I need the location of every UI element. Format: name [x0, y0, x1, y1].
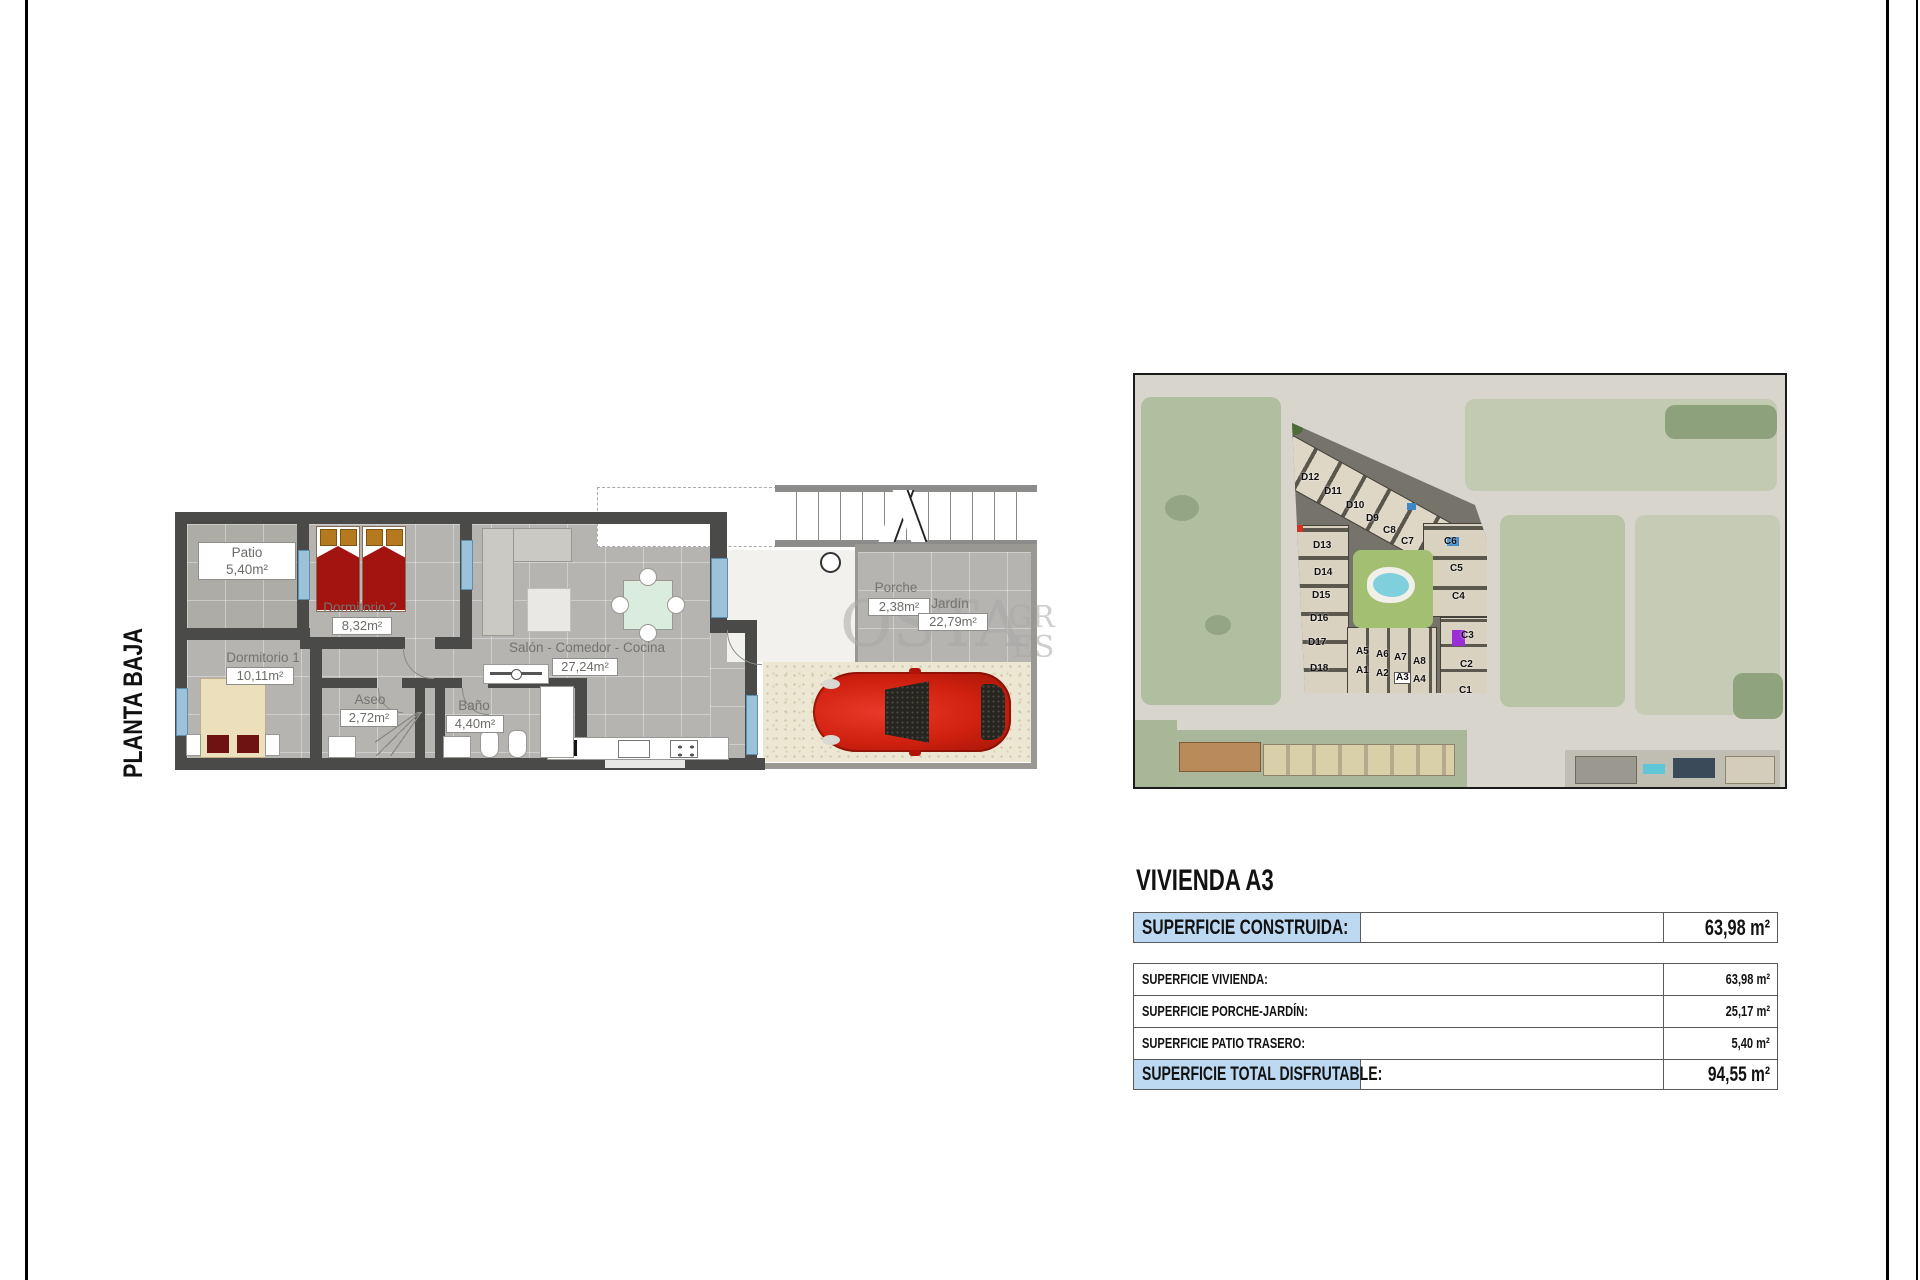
- bed-single: [200, 678, 266, 758]
- nightstand: [265, 734, 280, 756]
- window: [711, 558, 728, 618]
- sofa: [482, 528, 514, 636]
- map-unit-label-D17: D17: [1308, 638, 1326, 648]
- shower-tray: [540, 686, 574, 758]
- room-label-porche: Porche: [848, 580, 944, 595]
- map-unit-label-A7: A7: [1394, 653, 1407, 663]
- kitchen-window: [605, 760, 685, 768]
- row-value: 25,17 m²: [1726, 1003, 1770, 1020]
- map-unit-label-D12: D12: [1301, 473, 1319, 483]
- page-edge-rule: [1916, 0, 1918, 1280]
- room-label-aseo: Aseo: [342, 692, 398, 707]
- room-area-jardin: 22,79m²: [918, 613, 988, 631]
- table-total-row: SUPERFICIE TOTAL DISFRUTABLE: 94,55 m²: [1134, 1060, 1777, 1089]
- room-label-bano: Baño: [446, 698, 502, 713]
- total-value: 94,55 m²: [1708, 1063, 1770, 1087]
- pillow: [366, 529, 383, 546]
- row-value-cell: 25,17 m²: [1663, 996, 1777, 1027]
- summary-header-value-cell: 63,98 m²: [1663, 913, 1777, 942]
- map-unit-label-C4: C4: [1452, 592, 1465, 602]
- map-unit-label-D15: D15: [1312, 591, 1330, 601]
- summary-header-value: 63,98 m²: [1705, 915, 1770, 941]
- row-value-cell: 63,98 m²: [1663, 964, 1777, 995]
- pillow: [207, 735, 229, 753]
- chair: [611, 596, 629, 614]
- map-unit-label-C5: C5: [1450, 564, 1463, 574]
- room-name: Patio: [205, 544, 289, 561]
- page-left-rule: [25, 0, 28, 1280]
- pillow: [320, 529, 337, 546]
- window: [176, 688, 188, 736]
- floor-label: PLANTA BAJA: [118, 628, 149, 778]
- total-label: SUPERFICIE TOTAL DISFRUTABLE:: [1142, 1064, 1382, 1086]
- map-unit-label-C6: C6: [1444, 537, 1457, 547]
- map-unit-label-C8: C8: [1383, 526, 1396, 536]
- wall: [322, 678, 377, 688]
- kitchen-counter: [547, 737, 729, 760]
- room-label-dorm2: Dormitorio 2: [310, 600, 410, 615]
- toilet: [480, 730, 499, 758]
- map-unit-label-D14: D14: [1314, 568, 1332, 578]
- map-unit-label-A3: A3: [1394, 672, 1411, 684]
- summary-table: SUPERFICIE VIVIENDA: 63,98 m² SUPERFICIE…: [1133, 963, 1778, 1090]
- total-value-cell: 94,55 m²: [1663, 1060, 1777, 1089]
- window: [461, 540, 473, 590]
- room-area-dorm1: 10,11m²: [226, 667, 294, 685]
- summary-header-label: SUPERFICIE CONSTRUIDA:: [1142, 916, 1348, 940]
- porch-column: [820, 552, 841, 573]
- bidet: [508, 730, 527, 758]
- stove: [670, 740, 698, 758]
- map-unit-label-D13: D13: [1313, 541, 1331, 551]
- sink: [618, 740, 650, 758]
- pillow: [237, 735, 259, 753]
- curb: [765, 763, 1037, 769]
- washbasin: [443, 736, 471, 758]
- row-label: SUPERFICIE PORCHE-JARDÍN:: [1142, 1003, 1308, 1020]
- wall: [175, 628, 310, 640]
- pillow: [340, 529, 357, 546]
- room-label-patio: Patio 5,40m²: [198, 542, 296, 580]
- page-title: VIVIENDA A3: [1136, 864, 1274, 898]
- map-unit-label-C1: C1: [1459, 686, 1472, 696]
- washbasin: [328, 736, 356, 758]
- wall: [175, 512, 727, 524]
- map-unit-label-A5: A5: [1356, 647, 1369, 657]
- summary-header-row: SUPERFICIE CONSTRUIDA: 63,98 m²: [1133, 912, 1778, 943]
- room-area-bano: 4,40m²: [446, 715, 504, 733]
- chair: [639, 568, 657, 586]
- map-unit-label-A1: A1: [1356, 666, 1369, 676]
- car-headlight: [822, 735, 840, 745]
- nightstand: [186, 734, 201, 756]
- summary-header-label-cell: SUPERFICIE CONSTRUIDA:: [1134, 913, 1361, 942]
- watermark-text: ES: [1012, 630, 1054, 665]
- chair: [667, 596, 685, 614]
- room-area: 5,40m²: [205, 561, 289, 578]
- car: [813, 672, 1011, 752]
- garden-wall: [855, 544, 1037, 552]
- floor-plan: OSTA GR ES Patio 5,40m² Dormitorio 2 8,3…: [150, 480, 1060, 790]
- car-windshield: [885, 680, 929, 744]
- row-value: 5,40 m²: [1732, 1035, 1770, 1052]
- room-label-jardin: Jardín: [902, 596, 998, 611]
- site-map-aerial: D12D11D10D9C8C7C6C5C4D13D14D15D16D17D18A…: [1133, 373, 1787, 789]
- table-row: SUPERFICIE PORCHE-JARDÍN: 25,17 m²: [1134, 996, 1777, 1028]
- row-label: SUPERFICIE PATIO TRASERO:: [1142, 1035, 1305, 1052]
- map-unit-label-D9: D9: [1366, 514, 1379, 524]
- map-unit-labels: D12D11D10D9C8C7C6C5C4D13D14D15D16D17D18A…: [1135, 375, 1785, 787]
- tv-sideboard: [483, 664, 549, 684]
- page-right-rule: [1886, 0, 1889, 1280]
- total-label-cell: SUPERFICIE TOTAL DISFRUTABLE:: [1134, 1060, 1361, 1089]
- pillow: [386, 529, 403, 546]
- room-area-salon: 27,24m²: [552, 658, 618, 676]
- car-headlight: [822, 679, 840, 689]
- map-unit-label-C2: C2: [1460, 660, 1473, 670]
- map-unit-label-D11: D11: [1324, 487, 1342, 497]
- row-label: SUPERFICIE VIVIENDA:: [1142, 971, 1268, 988]
- rug: [527, 588, 571, 632]
- map-unit-label-A4: A4: [1413, 675, 1426, 685]
- row-value-cell: 5,40 m²: [1663, 1028, 1777, 1059]
- tv-base: [511, 669, 522, 680]
- map-unit-label-A6: A6: [1376, 650, 1389, 660]
- room-label-salon: Salón - Comedor - Cocina: [498, 640, 676, 655]
- room-label-dorm1: Dormitorio 1: [208, 650, 318, 665]
- car-mirror: [909, 668, 921, 674]
- row-value: 63,98 m²: [1726, 971, 1770, 988]
- window: [746, 695, 758, 755]
- map-unit-label-C7: C7: [1401, 537, 1414, 547]
- table-row: SUPERFICIE PATIO TRASERO: 5,40 m²: [1134, 1028, 1777, 1060]
- map-unit-label-C3: C3: [1461, 631, 1474, 641]
- dining-table: [623, 580, 673, 630]
- map-unit-label-D10: D10: [1346, 501, 1364, 511]
- room-area-aseo: 2,72m²: [340, 709, 398, 727]
- map-unit-label-A8: A8: [1413, 657, 1426, 667]
- map-unit-label-D18: D18: [1310, 664, 1328, 674]
- wall: [300, 637, 405, 649]
- table-row: SUPERFICIE VIVIENDA: 63,98 m²: [1134, 964, 1777, 996]
- wall: [402, 678, 462, 688]
- map-unit-label-D16: D16: [1310, 614, 1328, 624]
- window: [298, 550, 310, 600]
- car-mirror: [909, 750, 921, 756]
- room-area-dorm2: 8,32m²: [332, 617, 392, 635]
- map-unit-label-A2: A2: [1376, 669, 1389, 679]
- car-rear-window: [981, 684, 1005, 740]
